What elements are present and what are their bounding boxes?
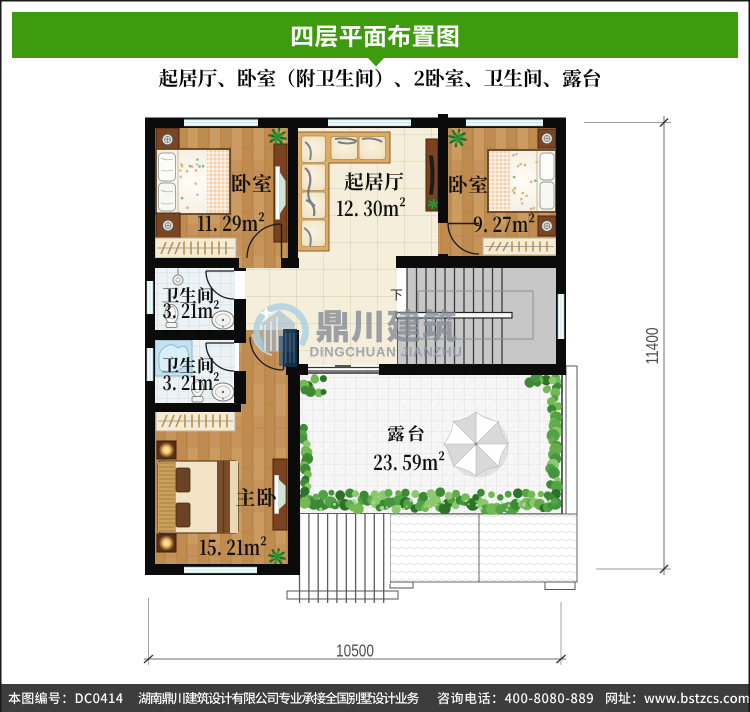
svg-text:11400: 11400 <box>642 328 662 365</box>
svg-text:DINGCHUAN JIANZHU: DINGCHUAN JIANZHU <box>310 345 463 360</box>
svg-text:10500: 10500 <box>336 641 374 661</box>
